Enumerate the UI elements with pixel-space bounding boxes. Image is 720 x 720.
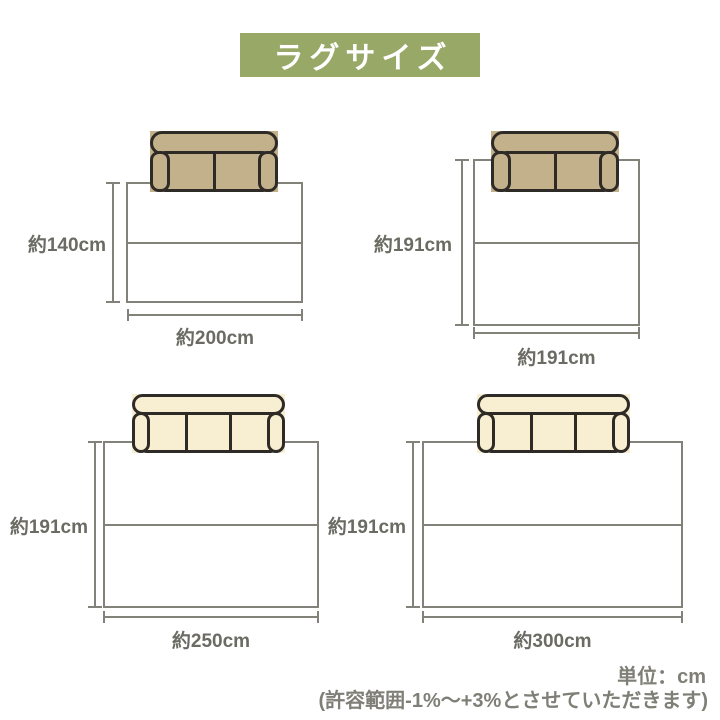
height-dimension-label: 約191cm (320, 512, 406, 539)
sofa-top-view (150, 131, 278, 192)
sofa-armrest-left (132, 412, 150, 453)
sofa-seat-cushion (530, 415, 574, 450)
rug-outline (126, 182, 303, 303)
sofa-armrest-left (477, 412, 495, 453)
rug-size-infographic: ラグサイズ 約140cm 約200cm (0, 0, 720, 720)
title-banner: ラグサイズ (240, 33, 480, 77)
width-dimension-label: 約300cm (422, 626, 683, 653)
sofa-top-view (491, 131, 619, 192)
sofa-armrest-right (267, 412, 285, 453)
sofa-armrest-left (491, 151, 511, 192)
sofa-armrest-right (258, 151, 278, 192)
sofa-seat-cushion (163, 154, 213, 189)
rug-fold-line (128, 242, 301, 244)
rug-fold-line (424, 524, 681, 526)
tolerance-note: (許容範囲-1%〜+3%とさせていただきます) (319, 684, 708, 713)
width-dimension-line (103, 616, 319, 618)
sofa-seat (501, 151, 609, 192)
height-dimension-label: 約140cm (18, 230, 106, 257)
sofa-top-view (132, 394, 285, 453)
height-dimension-label: 約191cm (364, 230, 452, 257)
sofa-top-view (477, 394, 630, 453)
sofa-seat (160, 151, 268, 192)
width-dimension-label: 約250cm (103, 626, 319, 653)
rug-fold-line (105, 524, 317, 526)
height-dimension-label: 約191cm (2, 512, 88, 539)
width-dimension-line (422, 616, 683, 618)
height-dimension-line (461, 159, 463, 326)
width-dimension-label: 約200cm (127, 323, 303, 350)
height-dimension-line (94, 441, 96, 608)
sofa-seat (141, 412, 276, 453)
width-dimension-line (127, 314, 303, 316)
height-dimension-line (112, 182, 114, 303)
rug-outline (103, 441, 319, 608)
height-dimension-line (412, 441, 414, 608)
sofa-seat (486, 412, 621, 453)
sofa-armrest-right (612, 412, 630, 453)
sofa-seat-cushion (185, 415, 229, 450)
sofa-armrest-right (599, 151, 619, 192)
rug-outline (422, 441, 683, 608)
width-dimension-line (473, 332, 640, 334)
sofa-seat-cushion (489, 415, 530, 450)
rug-fold-line (475, 242, 638, 244)
width-dimension-label: 約191cm (473, 343, 640, 370)
sofa-armrest-left (150, 151, 170, 192)
page-title: ラグサイズ (267, 33, 452, 77)
sofa-seat-cushion (504, 154, 554, 189)
sofa-seat-cushion (144, 415, 185, 450)
